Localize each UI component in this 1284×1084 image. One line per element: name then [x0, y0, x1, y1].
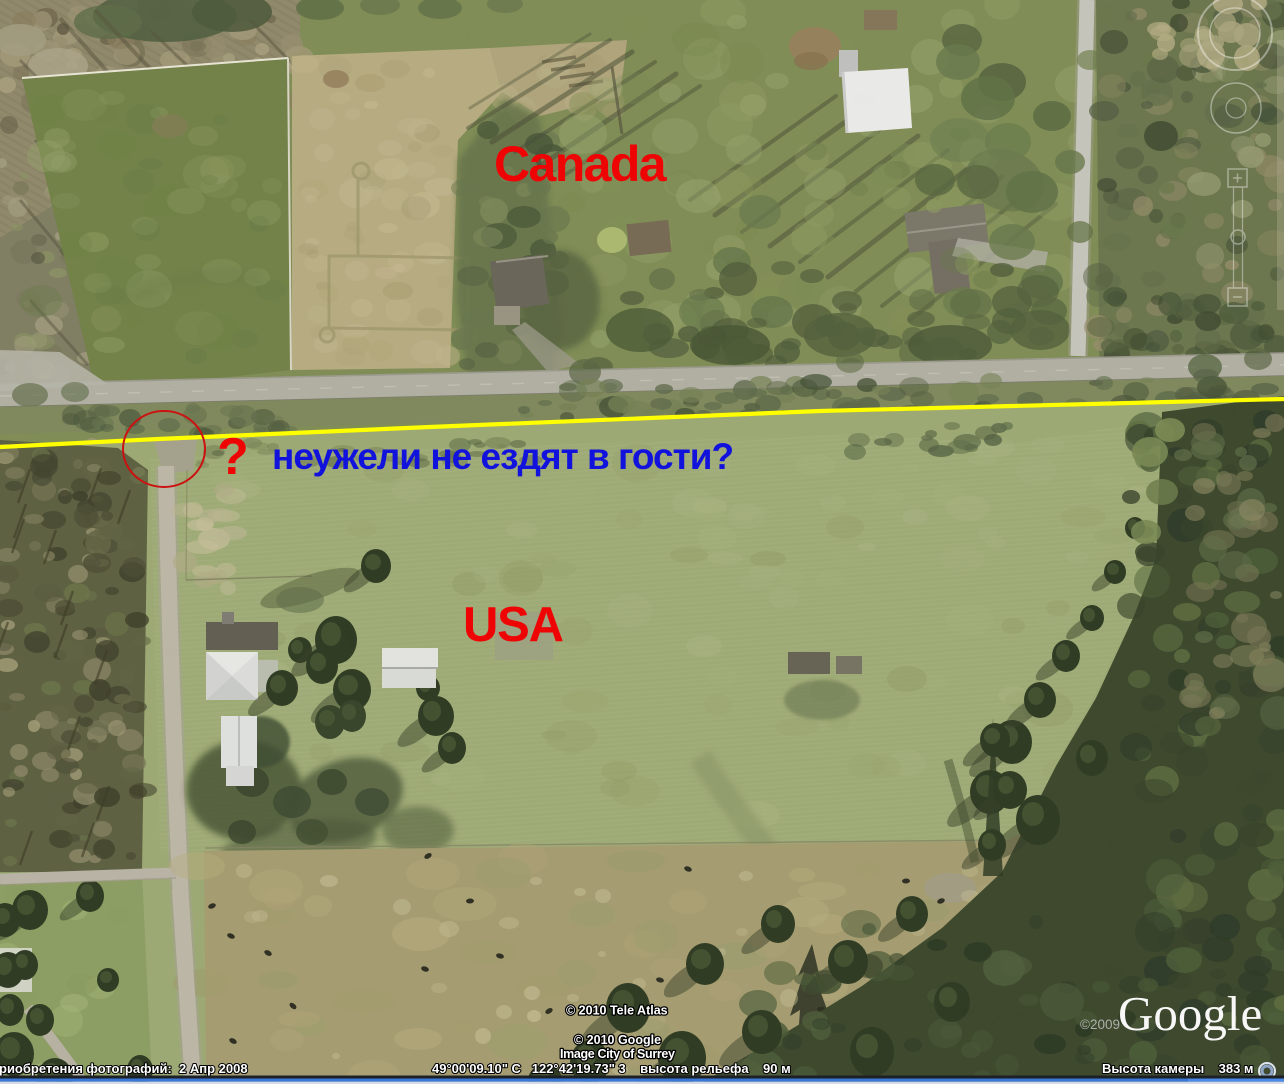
- svg-text:Высота камеры 383 м: Высота камеры 383 м: [1102, 1061, 1254, 1076]
- svg-text:©2009: ©2009: [1080, 1017, 1120, 1032]
- svg-text:неужели не ездят в гости?: неужели не ездят в гости?: [272, 436, 733, 477]
- svg-text:Google: Google: [1118, 986, 1262, 1041]
- svg-text:USA: USA: [463, 598, 564, 652]
- svg-text:© 2010 Google: © 2010 Google: [574, 1033, 661, 1047]
- svg-text:Canada: Canada: [494, 136, 668, 192]
- svg-text:риобретения фотографий: 2 Апр: риобретения фотографий: 2 Апр 2008: [0, 1061, 248, 1076]
- svg-text:© 2010 Tele Atlas: © 2010 Tele Atlas: [566, 1004, 668, 1018]
- svg-text:?: ?: [217, 428, 249, 486]
- svg-text:Image City of Surrey: Image City of Surrey: [560, 1047, 675, 1061]
- svg-text:49°00'09.10" С 122°42'19.73": 49°00'09.10" С 122°42'19.73" 3 высота ре…: [432, 1061, 791, 1076]
